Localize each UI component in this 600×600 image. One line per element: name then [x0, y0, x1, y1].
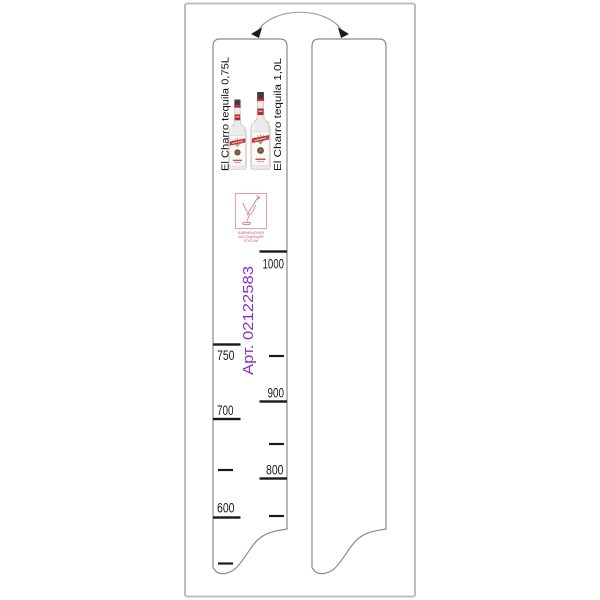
article-number: Арт. 02122583 [240, 266, 257, 375]
tick-600-major [213, 516, 241, 518]
scale-label-700: 700 [217, 403, 234, 418]
tick-800-major [260, 477, 288, 479]
scale-label-900: 900 [268, 386, 285, 401]
tick-850-minor [269, 443, 284, 445]
tick-750-major [213, 343, 241, 345]
scale-label-1000: 1000 [263, 257, 285, 272]
variant-10-label: El Charro tequila 1,0L [272, 58, 284, 171]
tick-650-minor [218, 469, 233, 471]
tick-750b-minor [269, 515, 284, 517]
scale-label-750: 750 [217, 348, 235, 363]
strip-drawing: El Charro tequila 0,75L El Charro tequil… [0, 0, 600, 600]
scale-label-600: 600 [217, 501, 235, 516]
tick-1000-major [260, 250, 288, 252]
tick-550-minor [218, 562, 233, 564]
scale-label-800: 800 [266, 463, 284, 478]
tick-700-major [213, 418, 241, 420]
tick-950-minor [269, 355, 284, 357]
logo-caption-line3: РОССИИ [244, 239, 259, 243]
back-strip [312, 39, 386, 574]
product-image: El Charro tequila 0,75L El Charro tequil… [0, 0, 600, 600]
tick-900-major [260, 400, 288, 402]
